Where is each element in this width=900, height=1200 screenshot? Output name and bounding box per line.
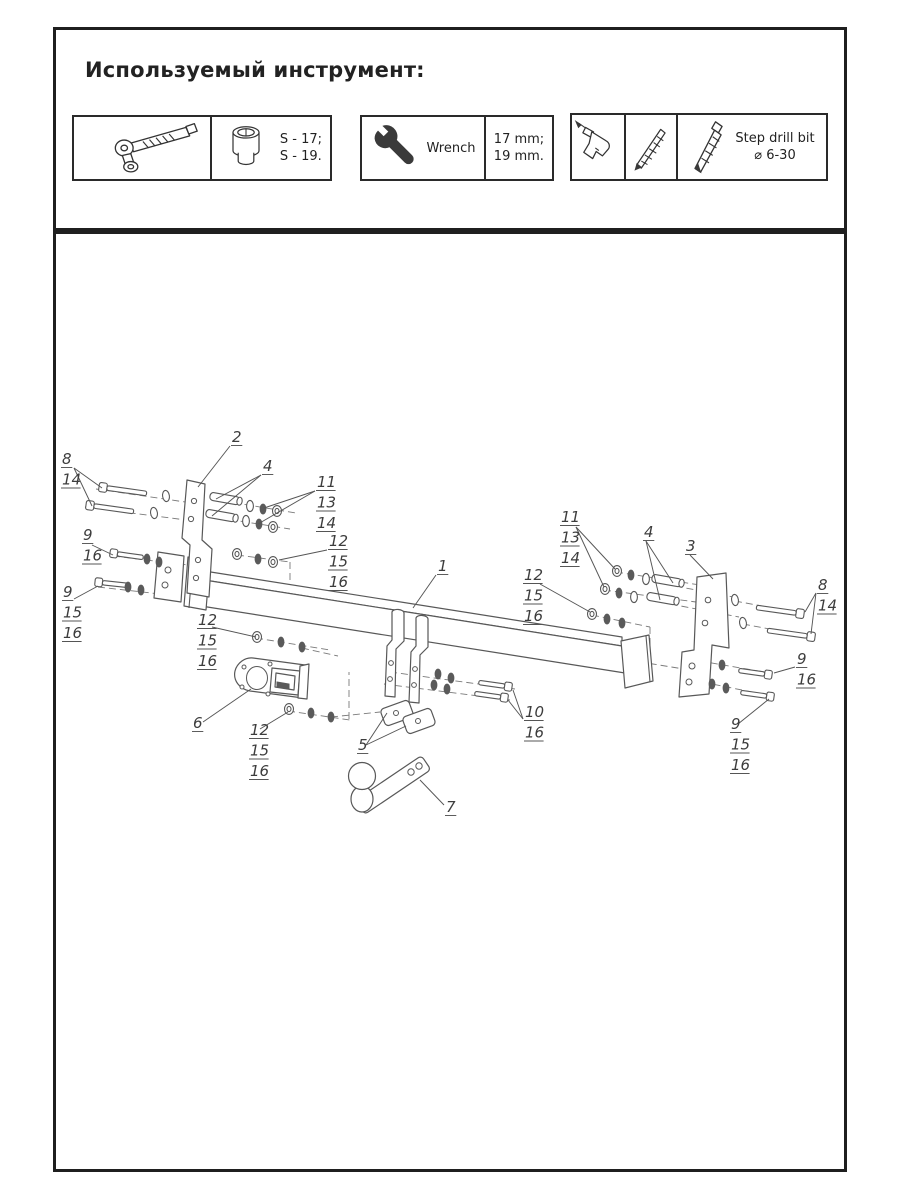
part-number: 8 [818,576,828,594]
toolbox-drill: Step drill bit ⌀ 6-30 [570,113,828,181]
part-number: 12 [198,611,217,629]
leader-line [420,780,444,805]
socket-cell: S - 17; S - 19. [212,117,330,179]
right-side-bracket-part-3 [679,573,729,697]
drill-icon [574,119,622,175]
part-number: 1 [438,557,448,575]
step-drill-bit-icon [689,119,729,175]
part-number: 14 [317,514,336,532]
step-drill-line2: ⌀ 6-30 [735,147,814,164]
leader-line [646,541,660,600]
beam-right-end-plate [621,635,653,688]
leader-line [74,586,98,599]
wrench-spec: 17 mm; 19 mm. [494,131,544,165]
part-number: 4 [644,523,654,541]
drill-cell [572,115,626,179]
part-number: 14 [62,471,81,489]
part-number: 3 [686,537,696,555]
part-number: 9 [83,526,93,544]
leader-line [576,527,615,569]
page-title: Используемый инструмент: [85,58,425,82]
leader-line [774,667,795,673]
part-number: 14 [561,549,580,567]
wrench-spec-line1: 17 mm; [494,131,544,148]
wrench-label: Wrench [427,141,476,156]
leader-line [576,527,604,587]
part-number: 8 [62,450,72,468]
part-number: 12 [250,721,269,739]
leader-line [513,690,523,719]
step-drill-cell: Step drill bit ⌀ 6-30 [678,115,826,179]
toolbox-socket-wrench: S - 17; S - 19. [72,115,332,181]
part-number: 2 [232,428,242,446]
part-number: 16 [731,756,750,774]
part-number: 15 [198,632,217,650]
part-number: 16 [797,671,816,689]
part-number: 15 [329,553,348,571]
ratchet-cell [74,117,212,179]
part-number: 10 [525,703,544,721]
socket-spec: S - 17; S - 19. [280,131,322,165]
wrench-spec-line2: 19 mm. [494,148,544,165]
ball-mount-part-7 [349,756,431,815]
wrench-cell: Wrench [362,117,486,179]
ratchet-wrench-icon [79,119,205,177]
wrench-spec-cell: 17 mm; 19 mm. [486,117,552,179]
leader-line [811,593,816,634]
part-number: 11 [561,508,580,526]
part-number: 15 [250,742,269,760]
step-drill-line1: Step drill bit [735,130,814,147]
leader-line [212,627,256,637]
part-number: 16 [250,762,269,780]
part-number: 11 [317,473,336,491]
wrench-icon [371,123,417,173]
leader-line [216,475,261,499]
leader-line [413,575,436,608]
socket-spec-line1: S - 17; [280,131,322,148]
leader-line [508,700,523,719]
toolbox-wrench: Wrench 17 mm; 19 mm. [360,115,554,181]
part-number: 13 [561,529,580,547]
part-number: 13 [317,494,336,512]
part-number: 16 [83,547,102,565]
leader-line [198,446,230,487]
part-number: 16 [329,573,348,591]
part-number: 12 [524,566,543,584]
drill-bit-icon [629,119,673,175]
part-number: 15 [731,736,750,754]
leader-line [203,689,251,722]
part-number: 6 [193,714,203,732]
part-number: 5 [358,736,368,754]
part-number: 12 [329,532,348,550]
part-number: 4 [263,457,273,475]
socket-spec-line2: S - 19. [280,148,322,165]
part-number: 7 [446,798,456,816]
socket-icon [220,120,272,176]
part-number: 9 [731,715,741,733]
part-number: 9 [63,583,73,601]
part-number: 15 [524,587,543,605]
part-number: 16 [198,652,217,670]
part-number: 16 [524,607,543,625]
part-number: 14 [818,597,837,615]
step-drill-spec: Step drill bit ⌀ 6-30 [735,130,814,164]
part-number: 16 [525,724,544,742]
spacer-plates-part-5 [380,699,436,734]
leader-line [540,584,590,612]
part-number: 9 [797,650,807,668]
part-number: 15 [63,604,82,622]
leader-line [690,555,713,579]
leader-line [738,699,769,724]
exploded-view-diagram: 8142411131491612151691516112151661215165… [53,231,847,1172]
part-number: 16 [63,624,82,642]
drill-bit-cell [626,115,678,179]
leader-line [279,550,327,560]
